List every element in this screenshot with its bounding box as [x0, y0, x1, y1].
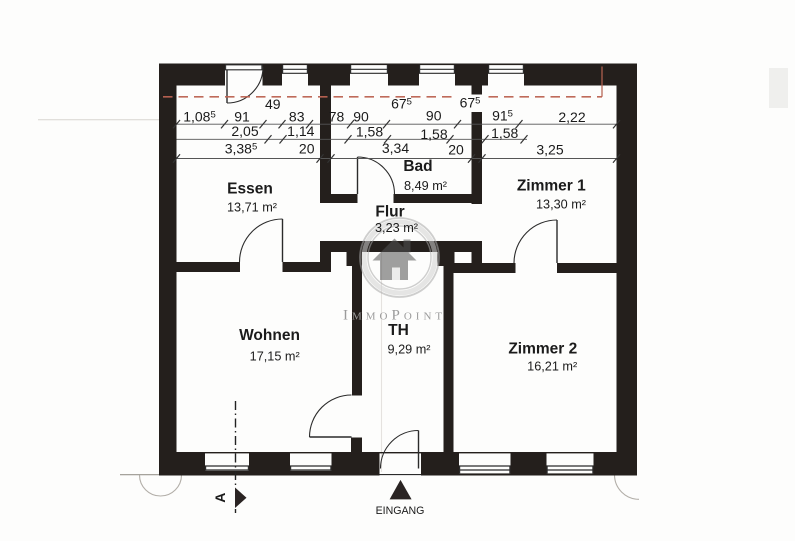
svg-text:1,58: 1,58	[420, 126, 447, 142]
svg-text:EINGANG: EINGANG	[376, 505, 425, 517]
svg-text:3,25: 3,25	[536, 142, 563, 158]
svg-text:20: 20	[299, 141, 315, 157]
svg-text:20: 20	[448, 142, 464, 158]
svg-text:2,22: 2,22	[558, 109, 585, 125]
svg-text:1,14: 1,14	[287, 123, 314, 139]
svg-text:Wohnen: Wohnen	[239, 327, 300, 344]
svg-text:3,34: 3,34	[382, 140, 409, 156]
svg-text:Zimmer 1: Zimmer 1	[517, 178, 586, 195]
svg-text:13,30 m²: 13,30 m²	[536, 198, 586, 212]
svg-text:Zimmer 2: Zimmer 2	[508, 341, 577, 358]
svg-text:13,71 m²: 13,71 m²	[227, 201, 277, 215]
svg-text:78: 78	[329, 109, 345, 125]
svg-text:9,29 m²: 9,29 m²	[387, 342, 430, 356]
svg-text:Bad: Bad	[403, 158, 432, 175]
svg-text:90: 90	[426, 108, 442, 124]
svg-text:TH: TH	[388, 322, 409, 339]
svg-text:A: A	[212, 493, 228, 503]
svg-text:17,15 m²: 17,15 m²	[250, 349, 300, 363]
svg-text:Essen: Essen	[227, 181, 273, 198]
svg-text:49: 49	[265, 96, 281, 112]
svg-text:3,23 m²: 3,23 m²	[375, 221, 418, 235]
svg-text:2,05: 2,05	[231, 123, 258, 139]
svg-text:1,58: 1,58	[491, 125, 518, 141]
svg-text:1,58: 1,58	[356, 124, 383, 140]
svg-text:Flur: Flur	[375, 204, 404, 221]
svg-text:16,21 m²: 16,21 m²	[527, 360, 577, 374]
svg-text:8,49 m²: 8,49 m²	[404, 179, 447, 193]
svg-text:90: 90	[353, 109, 369, 125]
